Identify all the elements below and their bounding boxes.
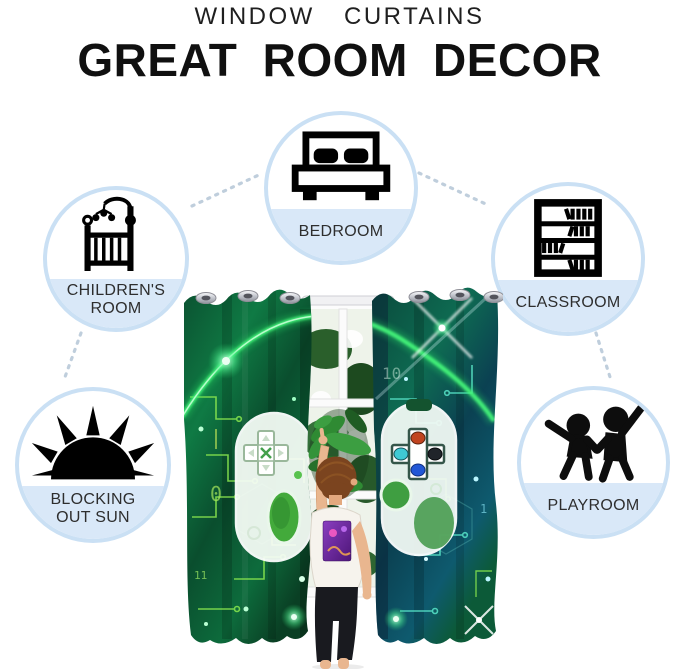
dotted-connector [192, 173, 263, 206]
grommet [238, 291, 258, 302]
badge-playroom: PLAYROOM [517, 386, 670, 539]
game-controller-right [381, 399, 456, 555]
bookshelf-icon [532, 197, 604, 279]
badge-label: CHILDREN'S ROOM [47, 276, 185, 326]
badge-childrens-room: CHILDREN'S ROOM [43, 186, 189, 332]
badge-label: BLOCKING OUT SUN [19, 483, 167, 536]
texture-digit: 11 [194, 569, 207, 582]
badge-label: BEDROOM [268, 206, 414, 259]
grommet [280, 293, 300, 304]
texture-digit: 0 [210, 482, 222, 506]
dotted-connector [419, 173, 490, 206]
bed-icon [290, 130, 392, 208]
sun-icon [30, 402, 156, 486]
grommet [484, 292, 503, 303]
badge-bedroom: BEDROOM [264, 111, 418, 265]
badge-blocking-out-sun: BLOCKING OUT SUN [15, 387, 171, 543]
grommet [409, 292, 429, 303]
curtain-product-photo: 0 11 [176, 279, 503, 669]
crib-icon [70, 194, 162, 278]
texture-digit: 1 [480, 502, 487, 516]
shirt-print [323, 521, 351, 561]
child-shorts [315, 587, 358, 662]
product-infographic: WINDOW CURTAINS GREAT ROOM DECOR [0, 0, 679, 669]
game-controller-left [236, 413, 312, 561]
badge-classroom: CLASSROOM [491, 182, 645, 336]
children-playing-icon [536, 401, 652, 483]
dotted-connector [65, 333, 81, 377]
grommet [450, 290, 470, 301]
texture-digit: 10 [382, 364, 401, 383]
badge-label: PLAYROOM [521, 480, 666, 532]
badge-label: CLASSROOM [495, 277, 641, 330]
dotted-connector [596, 333, 610, 377]
grommet [196, 293, 216, 304]
